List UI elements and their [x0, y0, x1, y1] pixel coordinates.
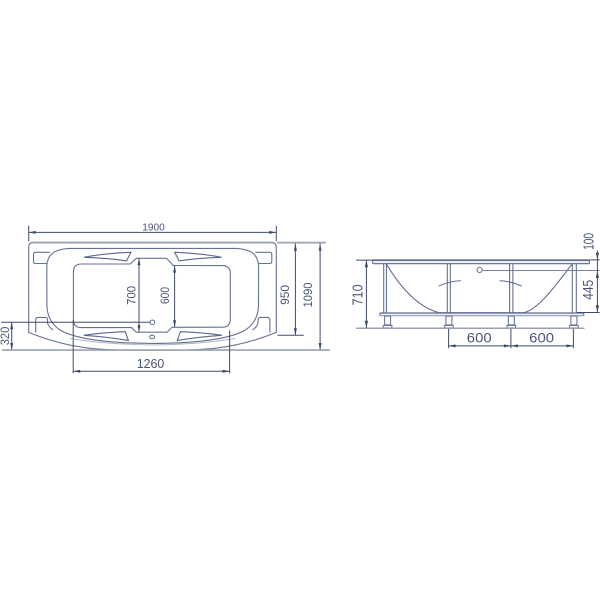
svg-text:100: 100: [581, 233, 598, 250]
svg-text:600: 600: [529, 329, 554, 345]
svg-text:710: 710: [349, 284, 366, 305]
svg-text:600: 600: [160, 287, 172, 304]
svg-text:600: 600: [467, 329, 492, 345]
svg-text:320: 320: [0, 326, 12, 345]
svg-text:1090: 1090: [303, 283, 315, 308]
svg-text:950: 950: [279, 285, 292, 305]
svg-text:700: 700: [126, 286, 138, 305]
svg-text:1900: 1900: [142, 222, 165, 233]
svg-text:1260: 1260: [137, 356, 165, 371]
svg-text:445: 445: [580, 280, 597, 300]
